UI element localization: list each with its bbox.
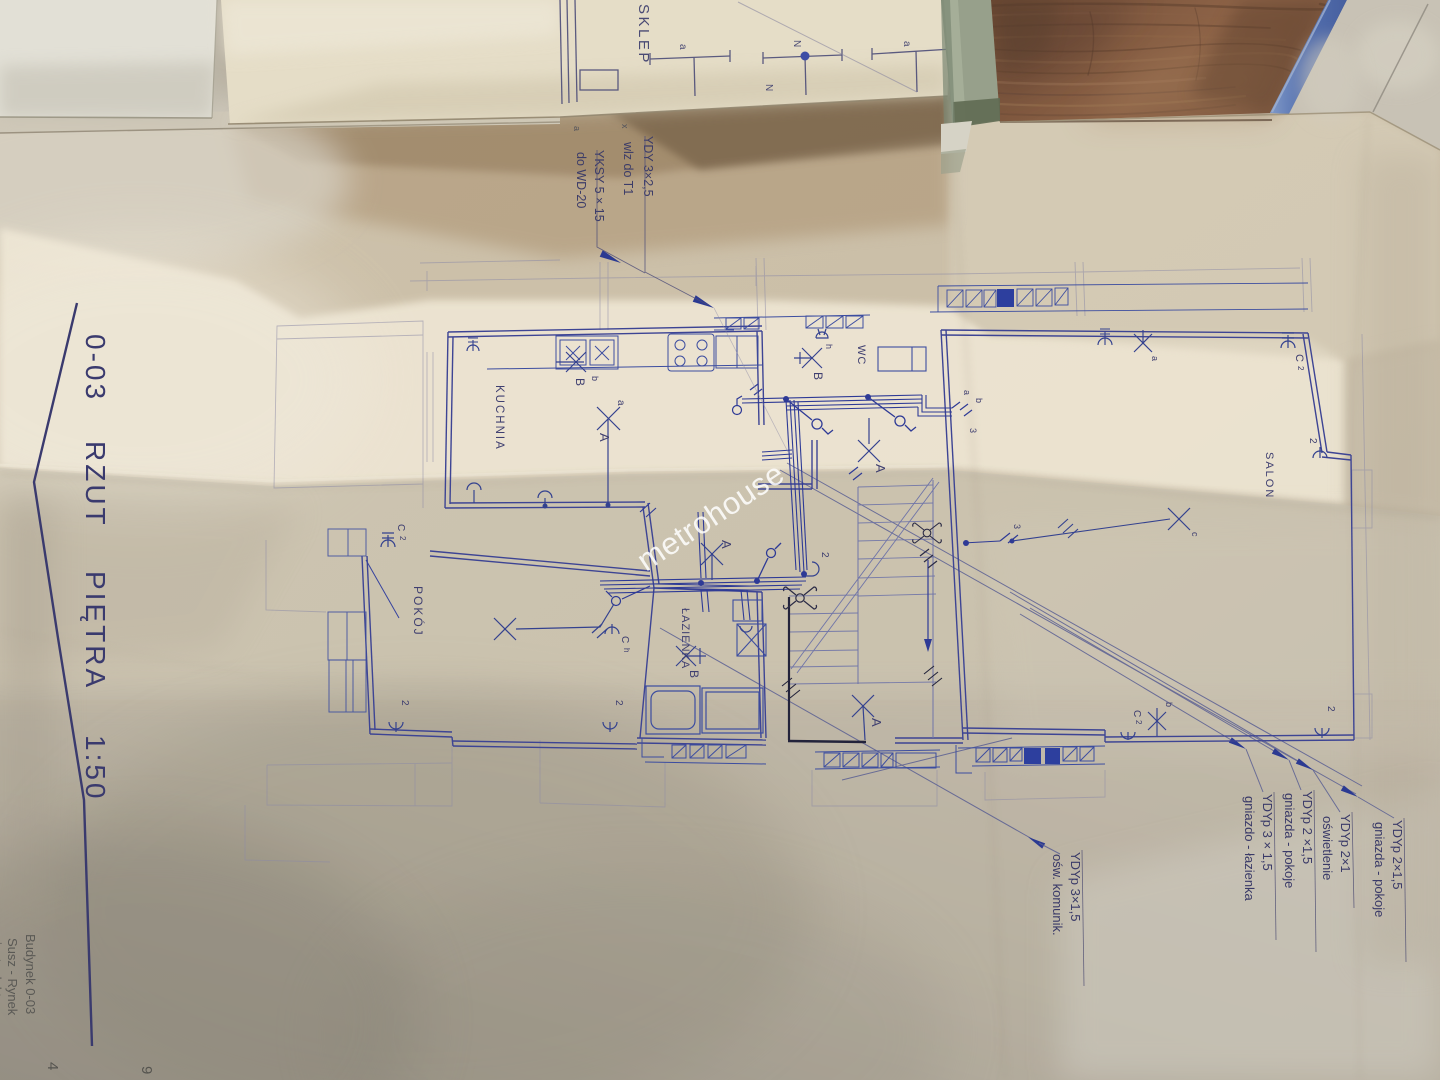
svg-text:h: h [824,344,834,349]
svg-text:9: 9 [138,1066,155,1074]
svg-text:x: x [620,124,630,129]
svg-text:SALON: SALON [1263,452,1275,499]
svg-text:3: 3 [1012,524,1022,529]
svg-text:YDY 3×2,5: YDY 3×2,5 [641,136,655,197]
svg-text:YDYp 3 × 1,5: YDYp 3 × 1,5 [1260,794,1275,871]
svg-text:a: a [572,126,582,131]
svg-text:YDYp 2×1: YDYp 2×1 [1338,814,1353,873]
svg-text:PIĘTRA: PIĘTRA [80,571,111,690]
svg-text:2: 2 [398,536,407,541]
svg-text:YDYp 2×1,5: YDYp 2×1,5 [1390,820,1405,890]
svg-text:B: B [573,378,587,386]
svg-text:Budynek 0-03: Budynek 0-03 [23,934,38,1014]
svg-text:2: 2 [1307,438,1318,444]
svg-text:A: A [869,718,884,727]
svg-text:b: b [1164,702,1174,707]
svg-text:gniazdo - łazienka: gniazdo - łazienka [1242,796,1257,902]
svg-text:POKÓJ: POKÓJ [411,586,426,637]
svg-text:C: C [619,636,630,643]
svg-text:WC: WC [855,345,867,365]
svg-text:2: 2 [613,700,624,706]
svg-text:C: C [1131,710,1142,717]
svg-text:b: b [590,376,600,381]
svg-text:a: a [615,400,626,406]
svg-text:YKSY 5 × 15: YKSY 5 × 15 [592,150,606,222]
svg-text:ośw. komunik.: ośw. komunik. [1050,854,1065,936]
svg-text:a: a [677,44,688,50]
svg-text:c: c [1190,532,1200,537]
svg-text:YDYp 2 ×1,5: YDYp 2 ×1,5 [1300,791,1315,864]
svg-text:h: h [622,648,631,652]
svg-text:3: 3 [968,428,978,433]
svg-text:C: C [1293,354,1305,362]
svg-text:a: a [962,390,972,395]
svg-text:gniazda - pokoje: gniazda - pokoje [1282,793,1297,888]
svg-text:ŁAZIENKA: ŁAZIENKA [679,608,691,669]
svg-text:inst. elektr.: inst. elektr. [0,942,4,1004]
svg-text:A: A [719,540,734,549]
svg-text:2: 2 [819,552,830,558]
svg-text:A: A [597,433,612,442]
svg-text:do WD-20: do WD-20 [574,152,588,208]
svg-text:YDYp 3×1,5: YDYp 3×1,5 [1068,852,1083,922]
svg-text:N: N [763,84,774,91]
svg-text:RZUT: RZUT [80,441,111,528]
svg-text:gniazda - pokoje: gniazda - pokoje [1372,822,1387,917]
svg-text:KUCHNIA: KUCHNIA [493,385,505,451]
svg-text:2: 2 [1134,720,1143,725]
svg-text:SKLEP: SKLEP [635,4,652,65]
svg-text:a: a [1150,356,1160,361]
svg-text:A: A [873,464,888,473]
svg-text:a: a [901,41,912,47]
svg-text:wlz do T1: wlz do T1 [621,141,635,195]
svg-text:2: 2 [399,700,410,706]
svg-text:2: 2 [1325,706,1336,712]
svg-text:1:50: 1:50 [80,735,111,802]
svg-text:Susz - Rynek: Susz - Rynek [5,938,20,1016]
svg-text:b: b [974,398,984,403]
svg-text:0-03: 0-03 [80,334,111,402]
svg-text:N: N [791,40,802,47]
svg-text:oświetlenie: oświetlenie [1320,816,1335,880]
svg-text:C: C [395,524,406,531]
svg-text:B: B [811,372,825,380]
svg-text:2: 2 [1296,366,1305,371]
svg-text:4: 4 [44,1062,61,1070]
svg-text:B: B [687,670,701,678]
